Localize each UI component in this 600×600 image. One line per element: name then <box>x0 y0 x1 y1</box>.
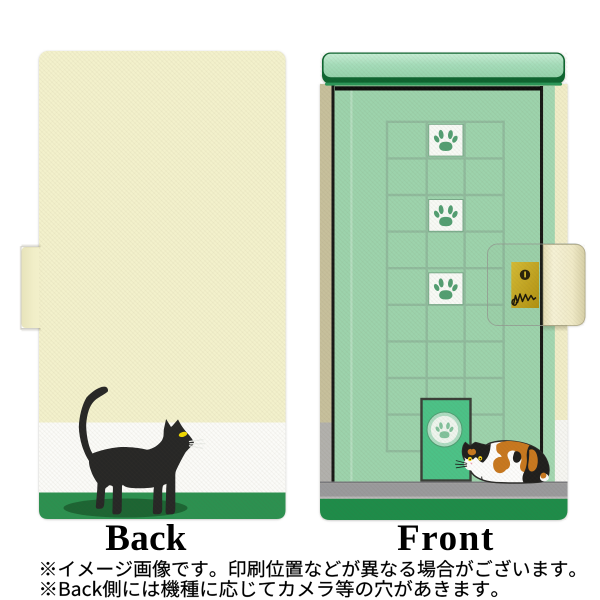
svg-text:Back: Back <box>105 518 187 559</box>
svg-text:Front: Front <box>397 518 495 559</box>
